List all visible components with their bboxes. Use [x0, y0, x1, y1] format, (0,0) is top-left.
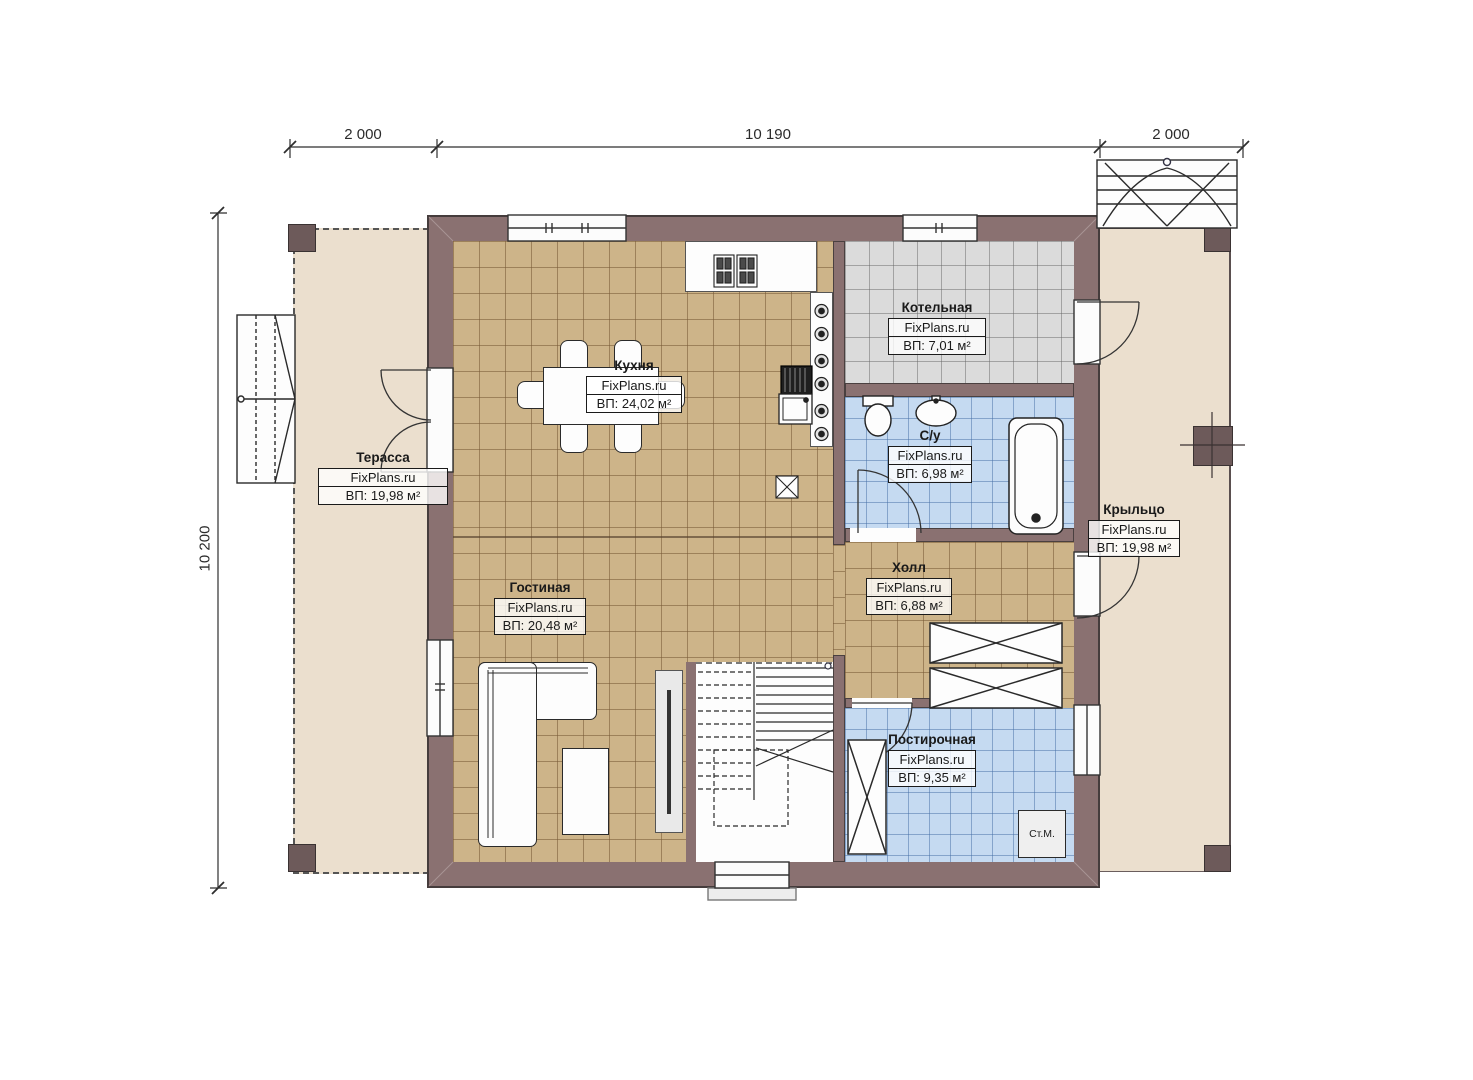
- kitchen-sink: [779, 394, 812, 424]
- window-living-left: [427, 640, 453, 736]
- dim-top-center-value: 10 190: [745, 126, 791, 143]
- room-name: С/у: [888, 428, 972, 443]
- sofa-seams: [488, 668, 588, 838]
- brand-text: FixPlans.ru: [319, 469, 447, 487]
- area-text: ВП: 7,01 м²: [889, 337, 985, 354]
- bathroom-sink: [916, 396, 956, 426]
- area-text: ВП: 20,48 м²: [495, 617, 585, 634]
- window-laundry-right: [1074, 705, 1100, 775]
- stove-burners: [815, 305, 828, 441]
- brand-text: FixPlans.ru: [587, 377, 681, 395]
- room-info-box: FixPlans.ru ВП: 24,02 м²: [586, 376, 682, 413]
- area-text: ВП: 24,02 м²: [587, 395, 681, 412]
- room-name: Котельная: [888, 300, 986, 315]
- room-label-laundry: Постирочная FixPlans.ru ВП: 9,35 м²: [888, 732, 976, 787]
- area-text: ВП: 9,35 м²: [889, 769, 975, 786]
- plan-linework: [0, 0, 1473, 1080]
- room-info-box: FixPlans.ru ВП: 7,01 м²: [888, 318, 986, 355]
- room-label-living: Гостиная FixPlans.ru ВП: 20,48 м²: [494, 580, 586, 635]
- room-name: Гостиная: [494, 580, 586, 595]
- room-label-hall: Холл FixPlans.ru ВП: 6,88 м²: [866, 560, 952, 615]
- window-boiler-top: [903, 215, 977, 241]
- brand-text: FixPlans.ru: [1089, 521, 1179, 539]
- washing-machine: Ст.М.: [1018, 810, 1066, 858]
- room-info-box: FixPlans.ru ВП: 9,35 м²: [888, 750, 976, 787]
- room-name: Постирочная: [888, 732, 976, 747]
- room-name: Холл: [866, 560, 952, 575]
- window-stairwell-bottom: [708, 862, 796, 900]
- area-text: ВП: 6,98 м²: [889, 465, 971, 482]
- dim-top-left: 2 000: [313, 126, 413, 143]
- room-name: Кухня: [586, 358, 682, 373]
- window-kitchen-top: [508, 215, 626, 241]
- brand-text: FixPlans.ru: [889, 751, 975, 769]
- room-info-box: FixPlans.ru ВП: 20,48 м²: [494, 598, 586, 635]
- room-label-bathroom: С/у FixPlans.ru ВП: 6,98 м²: [888, 428, 972, 483]
- dim-top-right: 2 000: [1121, 126, 1221, 143]
- dim-top-left-value: 2 000: [344, 126, 382, 143]
- entrance-door: [1074, 552, 1139, 618]
- dim-left: 10 200: [197, 499, 214, 599]
- room-label-kitchen: Кухня FixPlans.ru ВП: 24,02 м²: [586, 358, 682, 413]
- room-info-box: FixPlans.ru ВП: 6,98 м²: [888, 446, 972, 483]
- room-info-box: FixPlans.ru ВП: 19,98 м²: [318, 468, 448, 505]
- brand-text: FixPlans.ru: [495, 599, 585, 617]
- boiler-door: [1074, 300, 1139, 364]
- floor-plan-canvas: Ст.М.: [0, 0, 1473, 1080]
- room-label-boiler: Котельная FixPlans.ru ВП: 7,01 м²: [888, 300, 986, 355]
- room-label-porch: Крыльцо FixPlans.ru ВП: 19,98 м²: [1088, 502, 1180, 557]
- wall-corner-seams: [429, 217, 1098, 886]
- interior-staircase: [696, 662, 833, 826]
- room-info-box: FixPlans.ru ВП: 19,98 м²: [1088, 520, 1180, 557]
- dim-top-right-value: 2 000: [1152, 126, 1190, 143]
- area-text: ВП: 19,98 м²: [319, 487, 447, 504]
- washing-machine-label: Ст.М.: [1029, 828, 1055, 840]
- room-info-box: FixPlans.ru ВП: 6,88 м²: [866, 578, 952, 615]
- exterior-stairs-left: [237, 315, 295, 483]
- hall-closets: [930, 623, 1062, 708]
- room-name: Терасса: [318, 450, 448, 465]
- exterior-stairs-porch: [1097, 159, 1237, 229]
- room-name: Крыльцо: [1088, 502, 1180, 517]
- brand-text: FixPlans.ru: [889, 447, 971, 465]
- brand-text: FixPlans.ru: [889, 319, 985, 337]
- area-text: ВП: 6,88 м²: [867, 597, 951, 614]
- laundry-wardrobe: [848, 740, 886, 854]
- porch-pillar-cross: [1180, 412, 1245, 478]
- bathtub: [1009, 418, 1063, 534]
- fridge: [781, 366, 812, 394]
- dim-left-value: 10 200: [197, 526, 214, 572]
- cooktop: [714, 255, 757, 287]
- brand-text: FixPlans.ru: [867, 579, 951, 597]
- room-label-terrace: Терасса FixPlans.ru ВП: 19,98 м²: [318, 450, 448, 505]
- dim-top-center: 10 190: [693, 126, 843, 143]
- floor-drain: [776, 476, 798, 498]
- area-text: ВП: 19,98 м²: [1089, 539, 1179, 556]
